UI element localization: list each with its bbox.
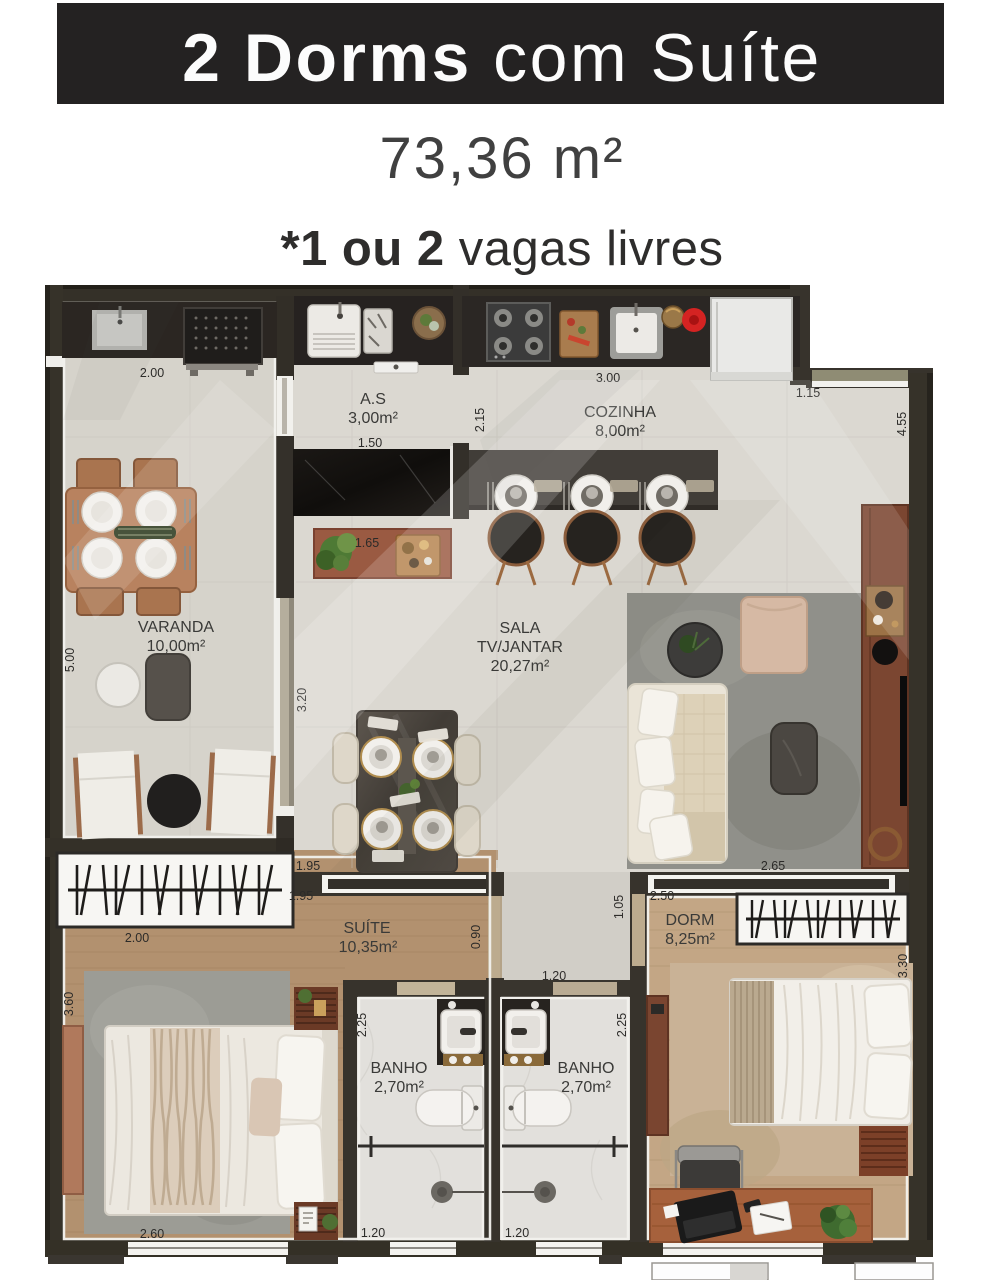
svg-text:1.95: 1.95 — [296, 859, 320, 873]
svg-text:1.20: 1.20 — [505, 1226, 529, 1240]
svg-text:SUÍTE: SUÍTE — [343, 918, 390, 937]
svg-text:4.55: 4.55 — [895, 412, 909, 436]
svg-text:BANHO: BANHO — [371, 1060, 428, 1077]
svg-text:SALA: SALA — [500, 620, 541, 637]
svg-text:VARANDA: VARANDA — [138, 619, 214, 636]
svg-text:5.00: 5.00 — [63, 648, 77, 672]
svg-text:10,00m²: 10,00m² — [147, 638, 206, 655]
svg-text:BANHO: BANHO — [558, 1060, 615, 1077]
svg-text:2.65: 2.65 — [761, 859, 785, 873]
svg-text:10,35m²: 10,35m² — [339, 939, 398, 956]
svg-text:2.15: 2.15 — [473, 408, 487, 432]
svg-text:3.30: 3.30 — [896, 954, 910, 978]
svg-text:73,36 m²: 73,36 m² — [380, 126, 625, 191]
svg-text:2.00: 2.00 — [125, 931, 149, 945]
svg-text:8,25m²: 8,25m² — [665, 931, 715, 948]
svg-text:2,70m²: 2,70m² — [374, 1079, 424, 1096]
svg-text:2.60: 2.60 — [140, 1227, 164, 1241]
svg-text:3.60: 3.60 — [62, 992, 76, 1016]
svg-text:*1 ou 2 vagas livres: *1 ou 2 vagas livres — [281, 222, 724, 276]
svg-text:2,70m²: 2,70m² — [561, 1079, 611, 1096]
svg-text:A.S: A.S — [360, 391, 386, 408]
svg-text:0.90: 0.90 — [469, 925, 483, 949]
svg-text:2 Dorms com Suíte: 2 Dorms com Suíte — [182, 20, 822, 96]
svg-text:2.25: 2.25 — [615, 1013, 629, 1037]
svg-text:3,00m²: 3,00m² — [348, 410, 398, 427]
svg-text:DORM: DORM — [666, 912, 715, 929]
svg-text:1.65: 1.65 — [355, 536, 379, 550]
svg-text:2.25: 2.25 — [355, 1013, 369, 1037]
svg-text:1.95: 1.95 — [289, 889, 313, 903]
svg-text:2.50: 2.50 — [650, 889, 674, 903]
svg-text:1.20: 1.20 — [361, 1226, 385, 1240]
svg-text:1.50: 1.50 — [358, 436, 382, 450]
